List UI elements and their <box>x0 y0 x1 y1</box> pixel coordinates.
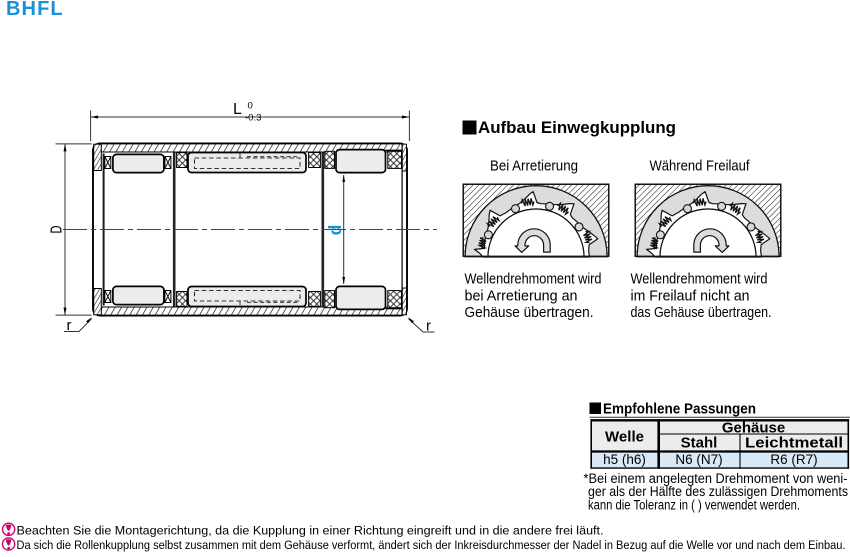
svg-text:0: 0 <box>248 101 253 112</box>
svg-text:kann die Toleranz in ( ) verwe: kann die Toleranz in ( ) verwendet werde… <box>588 497 800 512</box>
svg-text:-0.3: -0.3 <box>245 113 261 124</box>
svg-text:Empfohlene Passungen: Empfohlene Passungen <box>603 401 756 418</box>
svg-text:Stahl: Stahl <box>681 435 718 452</box>
svg-text:r: r <box>67 317 72 334</box>
svg-text:Da sich die Rollenkupplung sel: Da sich die Rollenkupplung selbst zusamm… <box>17 538 846 552</box>
svg-text:Während Freilauf: Während Freilauf <box>650 158 751 175</box>
svg-text:im Freilauf nicht an: im Freilauf nicht an <box>631 288 750 304</box>
svg-text:d: d <box>325 225 345 236</box>
svg-text:h5 (h6): h5 (h6) <box>603 452 646 467</box>
svg-text:Bei Arretierung: Bei Arretierung <box>490 158 578 175</box>
svg-text:Beachten Sie die Montagerichtu: Beachten Sie die Montagerichtung, da die… <box>17 523 604 537</box>
svg-text:L: L <box>233 101 242 118</box>
svg-text:Wellendrehmoment wird: Wellendrehmoment wird <box>465 272 602 288</box>
svg-text:D: D <box>49 226 66 234</box>
svg-text:Aufbau Einwegkupplung: Aufbau Einwegkupplung <box>478 119 676 137</box>
svg-text:r: r <box>426 318 431 335</box>
svg-text:Leichtmetall: Leichtmetall <box>745 435 843 452</box>
svg-text:das Gehäuse übertragen.: das Gehäuse übertragen. <box>631 305 772 321</box>
svg-text:bei Arretierung an: bei Arretierung an <box>465 288 578 304</box>
svg-text:Wellendrehmoment wird: Wellendrehmoment wird <box>631 272 768 288</box>
svg-text:R6 (R7): R6 (R7) <box>770 452 817 467</box>
svg-text:Welle: Welle <box>605 429 644 446</box>
svg-text:Gehäuse übertragen.: Gehäuse übertragen. <box>465 305 594 321</box>
svg-text:N6 (N7): N6 (N7) <box>675 452 722 467</box>
